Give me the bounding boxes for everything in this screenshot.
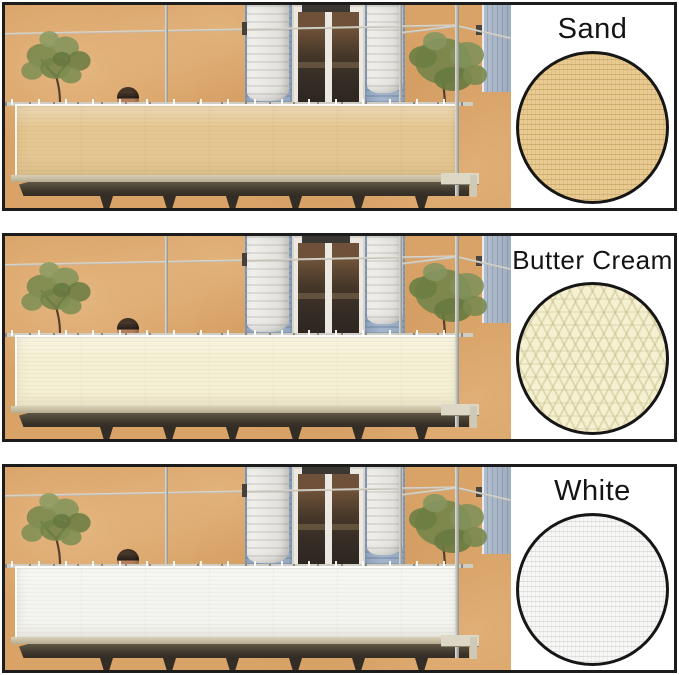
- ledge-end-cap: [441, 404, 479, 415]
- ledge-end-cap: [441, 173, 479, 184]
- screen-ties: [11, 330, 459, 336]
- color-name-label: Butter Cream: [512, 243, 673, 277]
- corner-pole: [455, 467, 459, 658]
- tree-left: [15, 252, 105, 338]
- right-curtain: [367, 467, 403, 555]
- roller-box: [302, 236, 350, 243]
- right-curtain: [367, 5, 403, 93]
- wire-bracket: [242, 22, 247, 35]
- tree-right: [401, 489, 497, 569]
- balcony-beam: [19, 182, 469, 196]
- french-window: [245, 467, 405, 570]
- balcony-ledge: [11, 406, 473, 413]
- ledge-end-cap: [441, 635, 479, 646]
- balcony-photo: [5, 467, 511, 670]
- privacy-screen: [15, 104, 459, 180]
- privacy-screen: [15, 566, 459, 642]
- fabric-swatch: [516, 282, 669, 435]
- tree-left: [15, 483, 105, 569]
- color-name-label: White: [554, 474, 631, 508]
- swatch-area: White: [511, 467, 674, 670]
- left-curtain: [247, 5, 289, 101]
- pergola-pole: [165, 467, 168, 567]
- roller-box: [302, 467, 350, 474]
- wire-bracket: [242, 484, 247, 497]
- french-window: [245, 236, 405, 339]
- french-window: [245, 5, 405, 108]
- color-option-panel: White: [2, 464, 677, 673]
- balcony-photo: [5, 5, 511, 208]
- privacy-screen: [15, 335, 459, 411]
- swatch-area: Butter Cream: [511, 236, 674, 439]
- screen-ties: [11, 561, 459, 567]
- color-option-panel: Butter Cream: [2, 233, 677, 442]
- fabric-swatch: [516, 51, 669, 204]
- corner-pole: [455, 236, 459, 427]
- balcony-ledge: [11, 175, 473, 182]
- color-option-panel: Sand: [2, 2, 677, 211]
- french-door: [292, 5, 365, 108]
- roller-box: [302, 5, 350, 12]
- left-curtain: [247, 236, 289, 332]
- balcony-beam: [19, 644, 469, 658]
- swatch-area: Sand: [511, 5, 674, 208]
- balcony-photo: [5, 236, 511, 439]
- tree-right: [401, 27, 497, 107]
- french-door: [292, 236, 365, 339]
- tree-right: [401, 258, 497, 338]
- left-curtain: [247, 467, 289, 563]
- wire-bracket: [242, 253, 247, 266]
- right-curtain: [367, 236, 403, 324]
- pergola-pole: [165, 5, 168, 105]
- color-options-sheet: Sand: [0, 0, 679, 673]
- screen-ties: [11, 99, 459, 105]
- balcony-ledge: [11, 637, 473, 644]
- french-door: [292, 467, 365, 570]
- color-name-label: Sand: [558, 12, 628, 46]
- tree-left: [15, 21, 105, 107]
- corner-pole: [455, 5, 459, 196]
- fabric-swatch: [516, 513, 669, 666]
- balcony-beam: [19, 413, 469, 427]
- pergola-pole: [165, 236, 168, 336]
